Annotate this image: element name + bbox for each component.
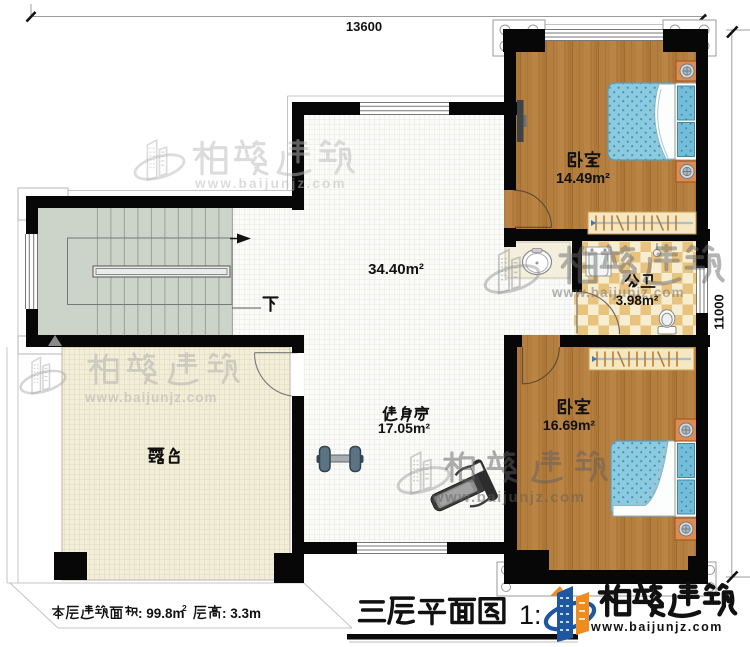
- svg-text:16.69m²: 16.69m²: [543, 417, 595, 433]
- svg-text:: 3.3m: : 3.3m: [222, 606, 261, 621]
- svg-text:13600: 13600: [346, 19, 382, 34]
- svg-text:www.baijunjz.com: www.baijunjz.com: [84, 390, 218, 405]
- svg-text:2: 2: [182, 603, 187, 613]
- svg-text:www.baijunjz.com: www.baijunjz.com: [590, 620, 723, 634]
- svg-text:www.baijunjz.com: www.baijunjz.com: [431, 489, 585, 506]
- svg-text:www.baijunjz.com: www.baijunjz.com: [194, 176, 347, 191]
- svg-text:3.98m²: 3.98m²: [616, 293, 659, 308]
- svg-text:: 99.8m: : 99.8m: [138, 606, 185, 621]
- svg-text:11000: 11000: [712, 294, 727, 329]
- svg-text:34.40m²: 34.40m²: [368, 261, 424, 278]
- svg-text:17.05m²: 17.05m²: [378, 420, 430, 436]
- svg-text:1:: 1:: [519, 600, 542, 630]
- svg-text:14.49m²: 14.49m²: [556, 171, 610, 187]
